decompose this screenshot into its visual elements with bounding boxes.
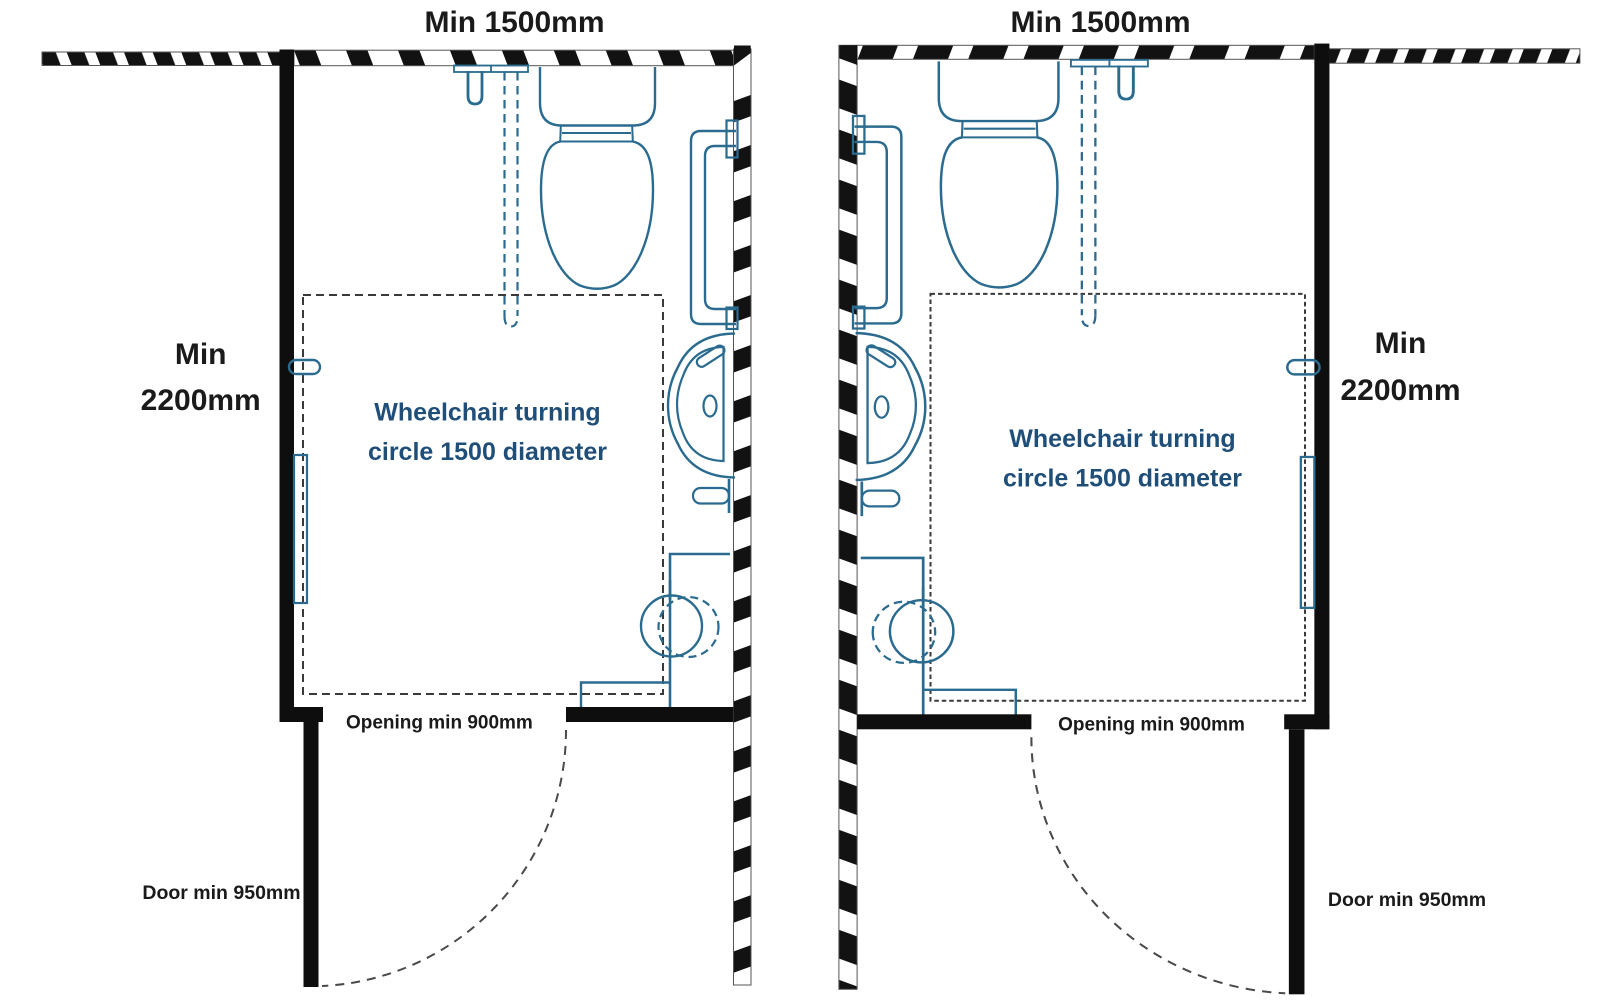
svg-text:Wheelchair turning: Wheelchair turning [374, 399, 600, 427]
svg-text:2200mm: 2200mm [1340, 374, 1460, 407]
svg-text:circle 1500 diameter: circle 1500 diameter [1003, 465, 1242, 493]
svg-text:Opening min 900mm: Opening min 900mm [1058, 715, 1245, 736]
svg-text:Door min 950mm: Door min 950mm [1328, 889, 1486, 911]
svg-text:Opening min 900mm: Opening min 900mm [346, 713, 533, 734]
svg-text:Min 1500mm: Min 1500mm [1010, 6, 1190, 39]
svg-text:2200mm: 2200mm [141, 384, 261, 417]
svg-text:Min: Min [1375, 327, 1427, 360]
svg-text:Wheelchair turning: Wheelchair turning [1009, 425, 1235, 453]
svg-text:Min: Min [175, 338, 227, 371]
svg-text:Door min 950mm: Door min 950mm [142, 882, 300, 904]
svg-text:circle 1500 diameter: circle 1500 diameter [368, 438, 607, 466]
svg-text:Min 1500mm: Min 1500mm [424, 6, 604, 39]
